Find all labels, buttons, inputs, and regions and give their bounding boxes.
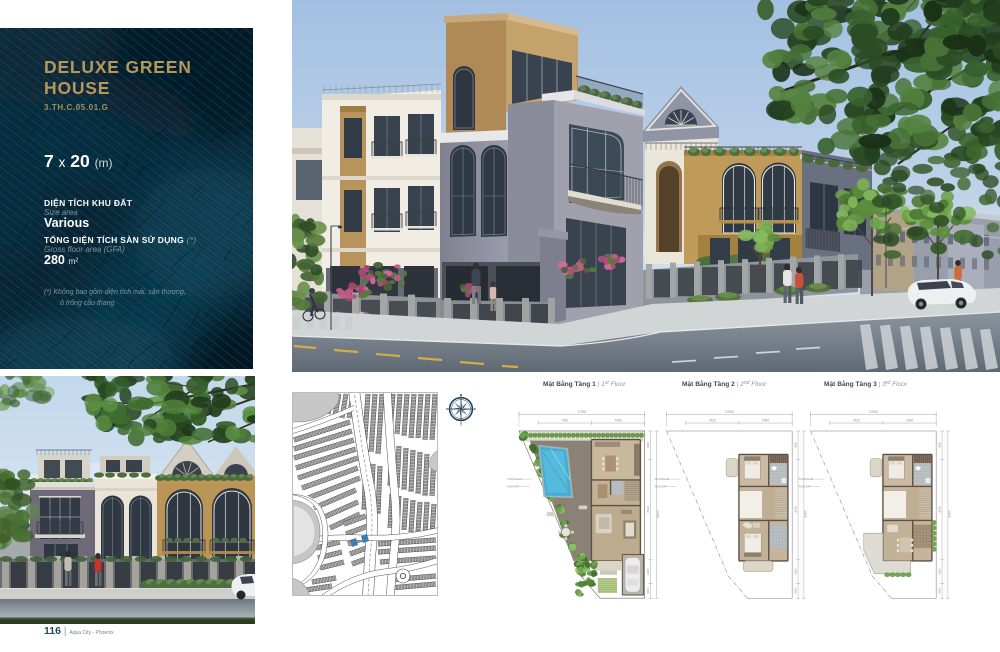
svg-text:17540: 17540: [577, 410, 586, 414]
svg-text:15000: 15000: [938, 506, 942, 514]
svg-text:2320: 2320: [794, 568, 798, 575]
svg-text:3000: 3000: [938, 587, 942, 594]
svg-text:W: W: [446, 407, 449, 411]
svg-text:15000: 15000: [794, 506, 798, 514]
svg-text:20000: 20000: [948, 510, 952, 518]
svg-text:3000: 3000: [646, 587, 650, 594]
svg-text:15000: 15000: [646, 506, 650, 514]
svg-text:2320: 2320: [938, 568, 942, 575]
svg-text:3000: 3000: [646, 441, 650, 448]
svg-text:7420: 7420: [561, 418, 568, 422]
svg-text:KHOANG LUI: KHOANG LUI: [655, 478, 670, 481]
svg-text:3000: 3000: [794, 587, 798, 594]
svg-text:RANH DAT: RANH DAT: [655, 485, 667, 488]
svg-text:E: E: [474, 407, 476, 411]
svg-text:3000: 3000: [794, 441, 798, 448]
svg-text:2320: 2320: [646, 568, 650, 575]
svg-text:7000: 7000: [614, 418, 621, 422]
svg-text:17540: 17540: [869, 410, 878, 414]
svg-text:7420: 7420: [853, 418, 860, 422]
svg-text:KHOANG LUI: KHOANG LUI: [507, 478, 522, 481]
svg-text:3000: 3000: [938, 441, 942, 448]
svg-text:KHOANG LUI: KHOANG LUI: [799, 478, 814, 481]
svg-text:S: S: [460, 422, 462, 426]
svg-text:17540: 17540: [725, 410, 734, 414]
svg-text:RANH DAT: RANH DAT: [507, 485, 519, 488]
svg-text:RANH DAT: RANH DAT: [799, 485, 811, 488]
svg-text:7000: 7000: [906, 418, 913, 422]
svg-text:20000: 20000: [656, 510, 660, 518]
svg-text:N: N: [460, 393, 462, 397]
svg-text:7000: 7000: [762, 418, 769, 422]
svg-text:20000: 20000: [804, 510, 808, 518]
svg-text:7420: 7420: [709, 418, 716, 422]
